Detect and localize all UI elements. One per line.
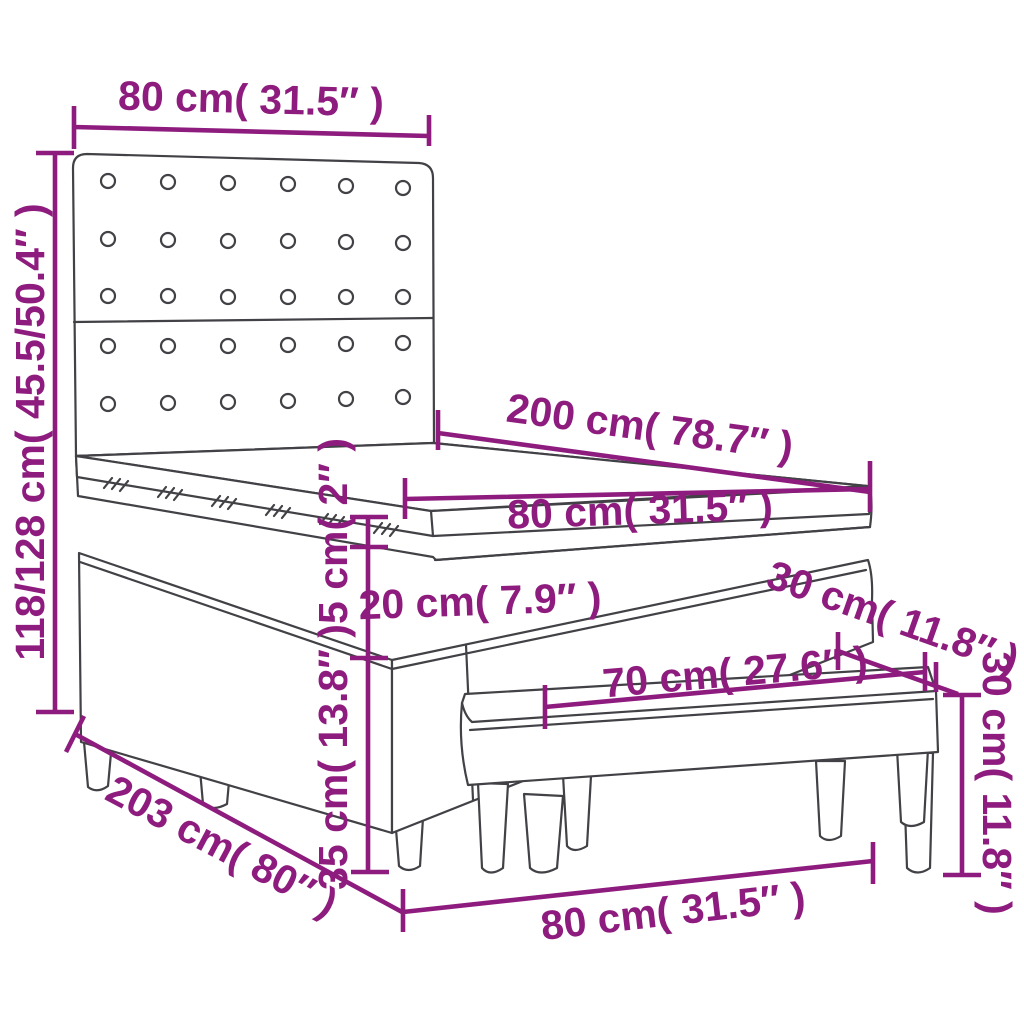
bench-leg xyxy=(816,761,845,840)
dim-label-headboard-height: 118/128 cm( 45.5/50.4″ ) xyxy=(7,203,53,660)
dim-label-bed-width: 80 cm( 31.5″ ) xyxy=(506,482,773,537)
dim-label-base-height: 35 cm( 13.8″ ) xyxy=(310,624,356,890)
bench-leg xyxy=(563,775,591,850)
headboard-outline xyxy=(73,154,434,456)
dim-label-topper-height: 5 cm( 2″ ) xyxy=(310,438,356,624)
headboard xyxy=(73,154,434,456)
dim-label-bench-height: 30 cm( 11.8″ ) xyxy=(974,651,1020,915)
dim-label-headboard-width: 80 cm( 31.5″ ) xyxy=(118,73,385,126)
bed-with-bench-diagram: 80 cm( 31.5″ ) 118/128 cm( 45.5/50.4″ ) … xyxy=(0,0,1024,1024)
bench-leg xyxy=(897,749,928,826)
bench-leg xyxy=(478,783,508,873)
bed-leg xyxy=(524,794,563,873)
bed-illustration xyxy=(73,154,938,873)
dimension-diagram: 80 cm( 31.5″ ) 118/128 cm( 45.5/50.4″ ) … xyxy=(0,0,1024,1024)
dim-label-mattress-height: 20 cm( 7.9″ ) xyxy=(358,574,602,628)
